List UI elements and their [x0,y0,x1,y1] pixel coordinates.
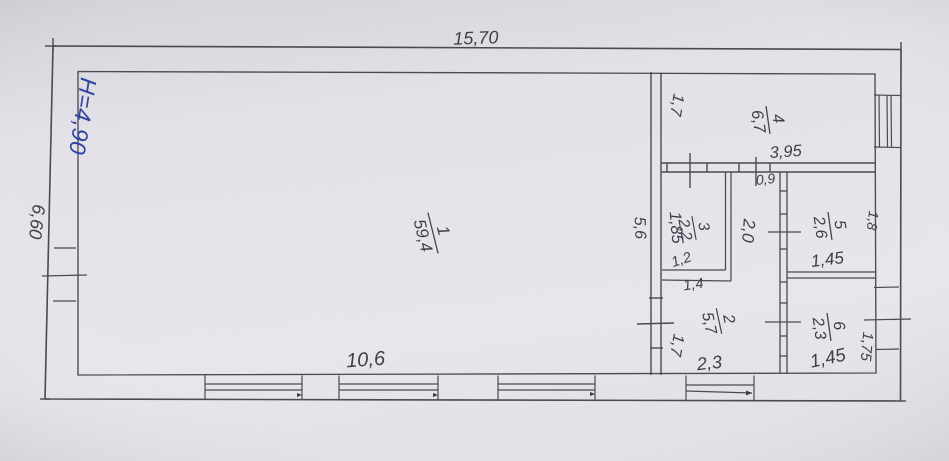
svg-text:1,85: 1,85 [666,211,687,245]
svg-text:2,3: 2,3 [695,352,723,375]
svg-text:1,8: 1,8 [864,210,882,231]
svg-text:1,75: 1,75 [857,331,877,362]
svg-text:3,95: 3,95 [769,142,803,162]
svg-text:2,0: 2,0 [738,217,759,244]
svg-text:1,45: 1,45 [810,248,846,271]
svg-text:1,4: 1,4 [682,276,704,295]
svg-text:2,6: 2,6 [809,214,829,239]
svg-text:0,9: 0,9 [755,170,776,188]
svg-text:10,6: 10,6 [345,348,386,373]
svg-text:6,60: 6,60 [25,203,49,240]
svg-text:6,7: 6,7 [748,109,769,135]
svg-text:5,6: 5,6 [631,216,649,239]
svg-text:15,70: 15,70 [453,27,499,49]
svg-text:2,3: 2,3 [808,315,828,340]
